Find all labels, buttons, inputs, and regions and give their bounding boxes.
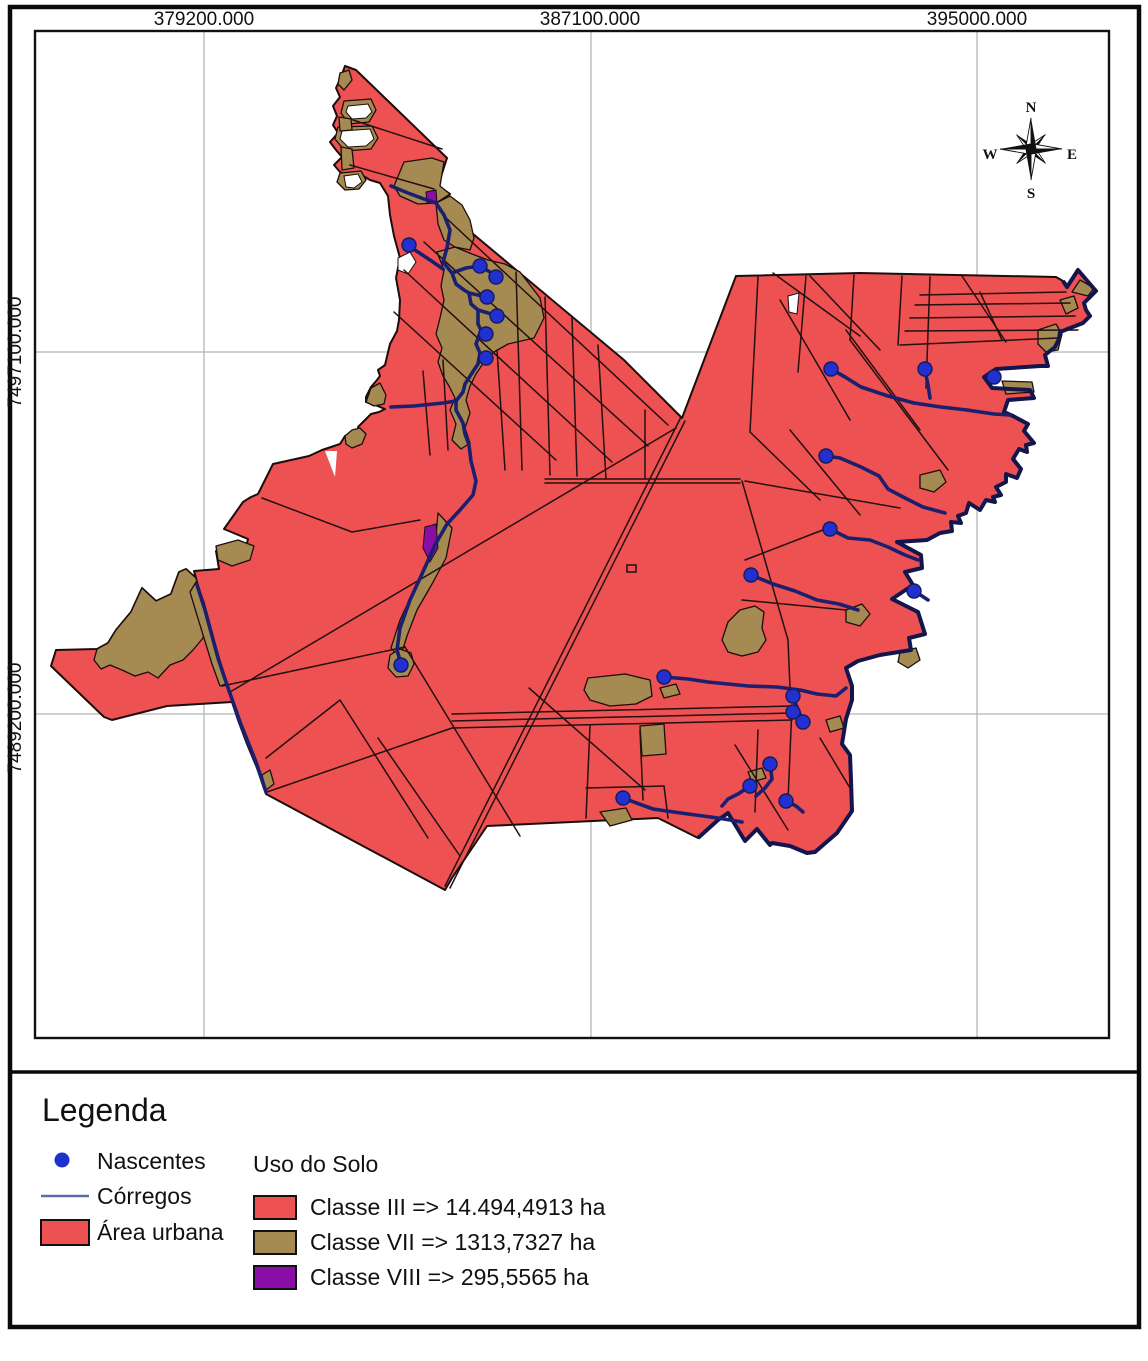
svg-text:Legenda: Legenda [42, 1092, 167, 1128]
svg-text:Classe VII => 1313,7327 ha: Classe VII => 1313,7327 ha [310, 1229, 595, 1255]
svg-text:Classe VIII => 295,5565 ha: Classe VIII => 295,5565 ha [310, 1264, 589, 1290]
svg-text:379200.000: 379200.000 [154, 9, 254, 30]
svg-text:E: E [1067, 147, 1077, 163]
svg-text:395000.000: 395000.000 [927, 9, 1027, 30]
svg-text:7489200.000: 7489200.000 [5, 663, 26, 774]
svg-text:S: S [1027, 186, 1035, 202]
svg-text:Área urbana: Área urbana [97, 1219, 224, 1245]
svg-text:Uso do Solo: Uso do Solo [253, 1151, 378, 1177]
svg-text:Classe III => 14.494,4913 ha: Classe III => 14.494,4913 ha [310, 1194, 606, 1220]
svg-text:W: W [983, 147, 998, 163]
svg-text:Nascentes: Nascentes [97, 1148, 206, 1174]
svg-text:N: N [1026, 100, 1037, 116]
svg-text:387100.000: 387100.000 [540, 9, 640, 30]
svg-text:7497100.000: 7497100.000 [5, 297, 26, 408]
svg-text:Córregos: Córregos [97, 1183, 192, 1209]
